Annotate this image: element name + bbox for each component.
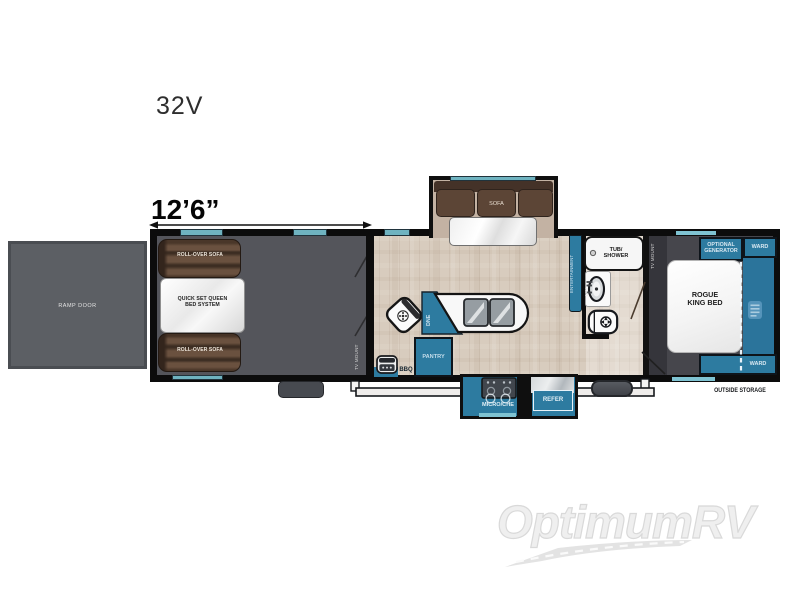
svg-text:OptimumRV: OptimumRV bbox=[497, 496, 758, 548]
